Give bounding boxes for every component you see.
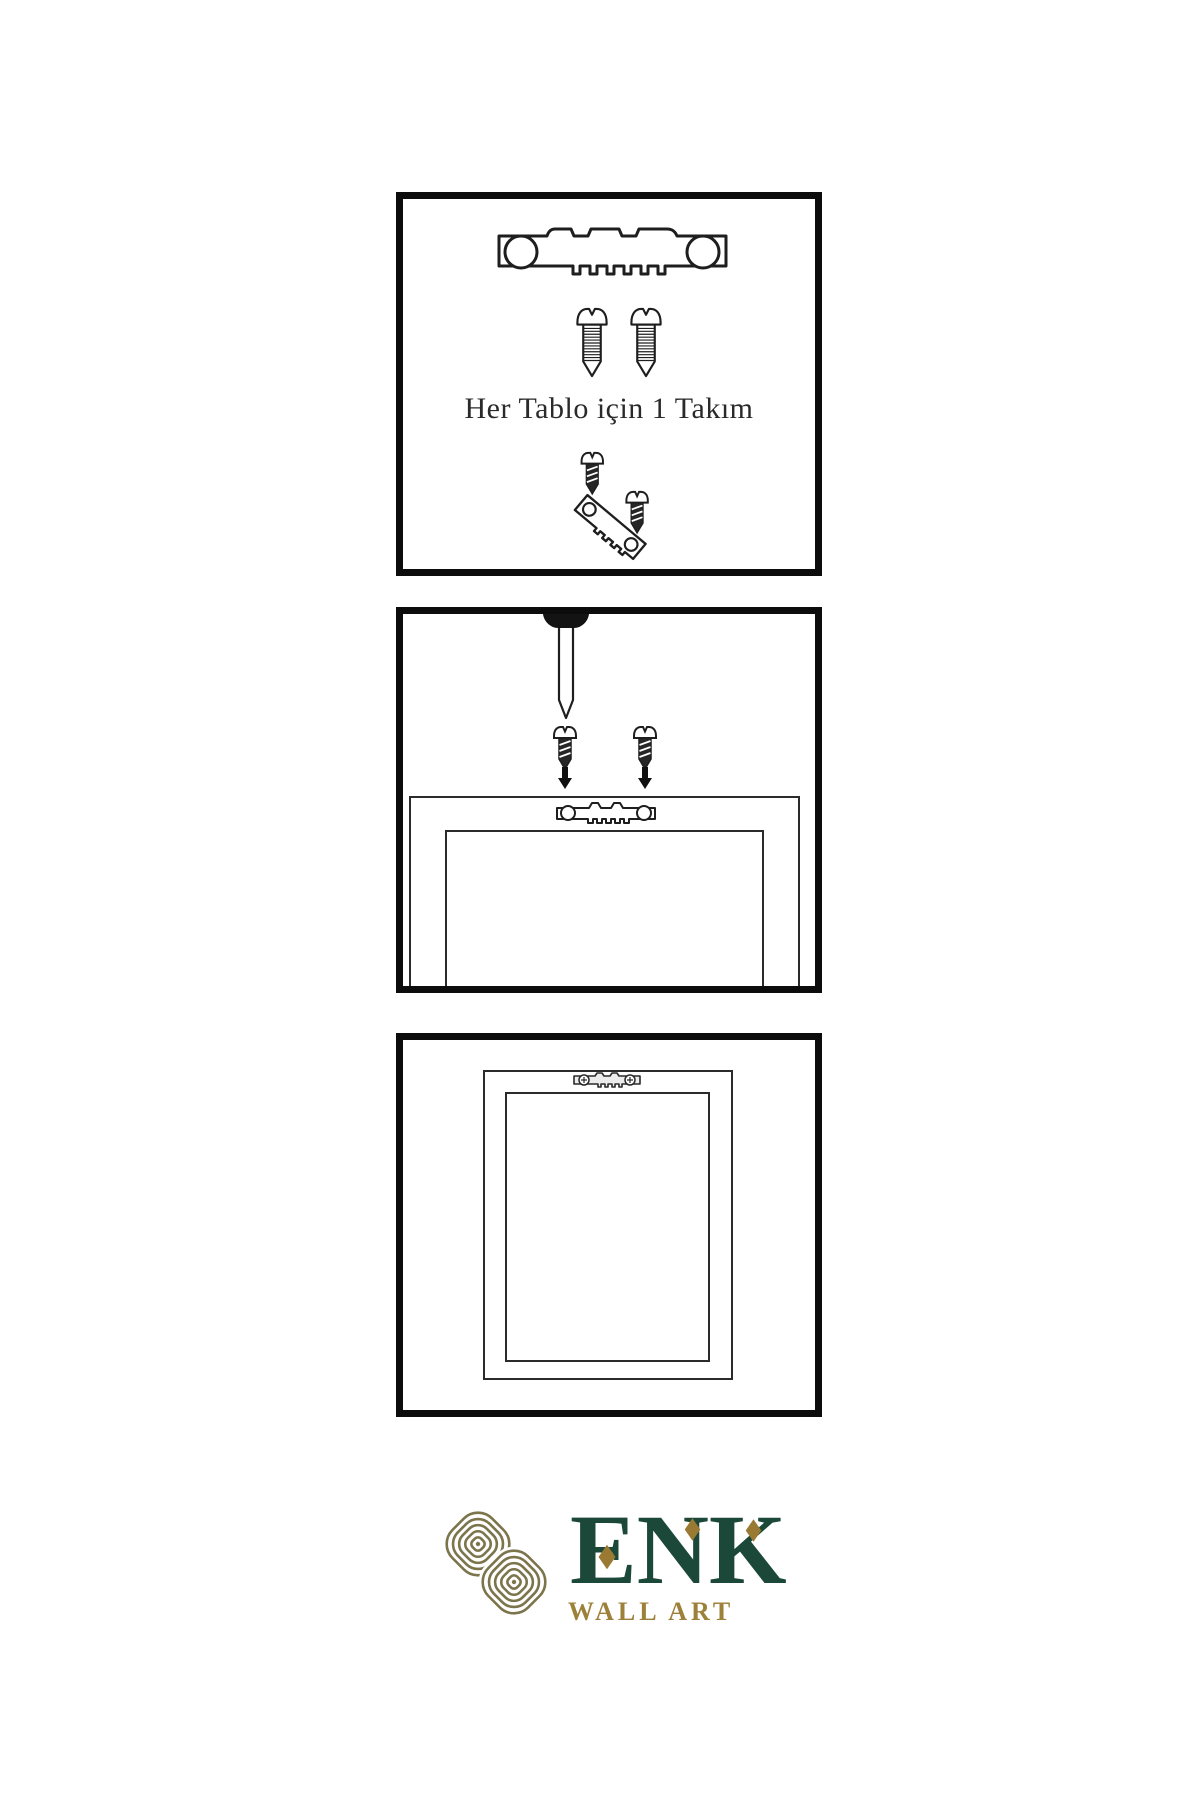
kit-caption: Her Tablo için 1 Takım xyxy=(403,392,815,426)
arrow-down-icon xyxy=(558,767,572,789)
arrow-down-icon xyxy=(638,767,652,789)
knot-icon xyxy=(440,1500,556,1626)
hanging-frame-inner xyxy=(505,1092,710,1362)
dark-screw-icon xyxy=(632,725,658,771)
screw-icon xyxy=(629,307,663,379)
brand-tagline: WALL ART xyxy=(568,1597,734,1627)
frame-back-inner xyxy=(445,830,764,993)
dark-screw-icon xyxy=(552,725,578,771)
step-1-hardware-panel: Her Tablo için 1 Takım xyxy=(396,192,822,576)
step-3-hanging-panel xyxy=(396,1033,822,1417)
mounted-sawtooth-hanger-icon xyxy=(573,1071,641,1089)
sawtooth-hanger-icon xyxy=(555,800,657,826)
screw-icon xyxy=(575,307,609,379)
angled-screw-into-hanger-icon xyxy=(545,449,660,564)
nail-icon xyxy=(543,614,589,720)
sawtooth-hanger-icon xyxy=(495,224,730,280)
step-2-mounting-panel xyxy=(396,607,822,993)
